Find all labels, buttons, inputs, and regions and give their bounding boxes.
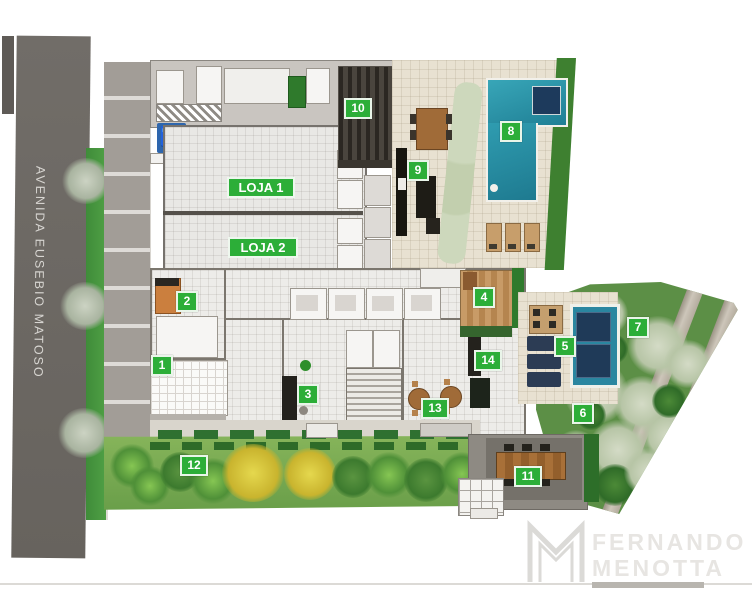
marker-9: 9 [407,160,429,181]
marker-12: 12 [180,455,208,476]
marker-2: 2 [176,291,198,312]
storage-room [364,175,391,206]
chair [446,130,452,140]
wall [224,268,226,362]
deck-edge [338,160,396,168]
unit-room [404,288,441,320]
chair [522,444,532,451]
garden-tree [664,340,712,388]
top-room [196,66,222,104]
chair [504,444,514,451]
road-edge [2,36,14,114]
front-garden [104,436,482,512]
cabinet-top [155,278,179,286]
planter-gray [420,423,472,437]
spa-tub [576,312,611,342]
street-tree [62,158,110,204]
daybed-pillow [533,309,540,316]
mail-room [156,316,218,358]
lounger-pillow [489,244,497,249]
chair [412,381,418,387]
reception-desk [282,376,297,424]
spa-tub [576,344,611,378]
daybed-pillow [533,321,540,328]
storage-room [364,239,391,269]
lounger-pillow [527,244,535,249]
marker-6: 6 [572,403,594,424]
stair-core [346,368,402,426]
chair [412,410,418,416]
yellow-tree [284,448,336,500]
marker-14: 14 [474,350,502,371]
lounger-pillow [508,244,516,249]
marker-3: 3 [297,384,319,405]
garden-tree [624,448,672,496]
daybed-pillow [549,321,556,328]
pool-ladder [490,184,498,192]
daybed-pillow [549,309,556,316]
spa-inset [532,86,561,115]
elevator-cab [346,330,373,368]
street-name-label: AVENIDA EUSEBIO MATOSO [31,166,47,379]
marker-11: 11 [514,466,542,487]
unit-room [328,288,365,320]
watermark-logo: FERNANDO MENOTTA [526,512,746,592]
access-ramp [156,104,222,122]
marker-4: 4 [473,287,495,308]
hedge-strip [584,434,599,502]
street-tree [60,282,110,330]
kitchen-cabinet [470,378,490,408]
watermark-tagline-bar [592,582,704,588]
watermark-line1: FERNANDO [592,530,746,555]
loja2-label: LOJA 2 [228,237,298,258]
bench-white [470,508,498,519]
parking-strip [104,62,151,462]
marker-5: 5 [554,336,576,357]
chair [446,114,452,124]
chair [444,379,450,385]
grill-furniture [416,176,436,218]
watermark-line2: MENOTTA [592,556,725,581]
top-room [306,68,330,104]
marker-13: 13 [421,398,449,419]
chair [504,479,514,486]
elevator-cab [373,330,400,368]
unit-room [366,288,403,320]
top-room [156,70,184,104]
chair [410,130,416,140]
storage-room [364,207,391,238]
outdoor-dining-table [416,108,448,150]
loja-divider-wall [163,211,363,215]
planter-white [306,423,338,438]
garden-shrub [652,384,686,418]
grill-furniture [426,218,440,234]
storage-room [337,218,363,244]
marker-1: 1 [151,355,173,376]
spa-lounger [527,372,561,387]
loja1-label: LOJA 1 [227,177,295,198]
yellow-tree [222,444,284,502]
unit-room [290,288,327,320]
site-plan: AVENIDA EUSEBIO MATOSO ♿ LOJA 1 LOJA 2 [0,0,752,600]
plant-pot [300,360,311,371]
chair [299,406,308,415]
storage-room [337,180,363,209]
monogram-m-icon [526,514,586,588]
hedge-strip [460,326,512,337]
street-tree [58,408,110,458]
marker-7: 7 [627,317,649,338]
planter-box [288,76,306,108]
chair [410,114,416,124]
chair [540,444,550,451]
bar-counter [396,148,407,236]
counter-item [398,178,406,190]
marker-8: 8 [500,121,522,142]
top-room [224,68,290,104]
marker-10: 10 [344,98,372,119]
